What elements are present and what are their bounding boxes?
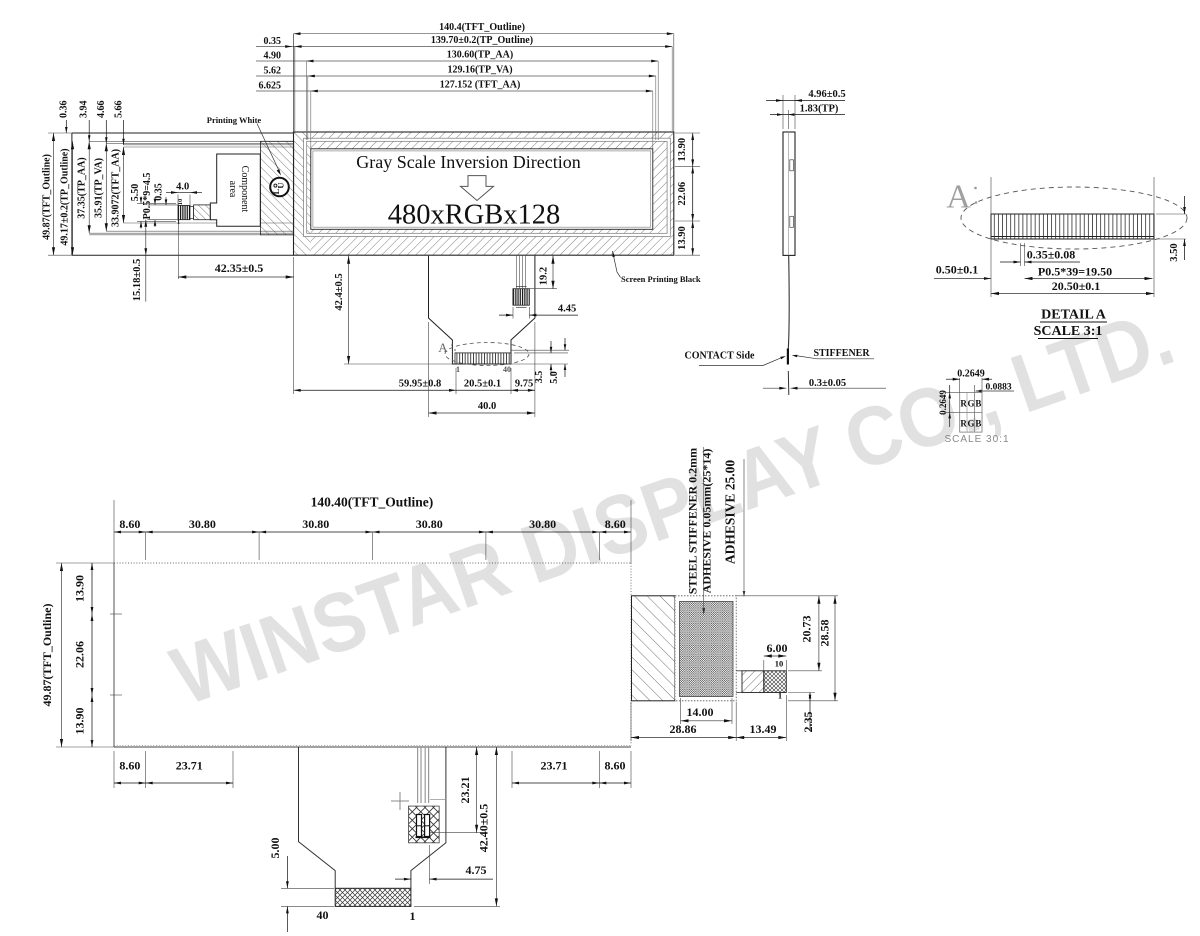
svg-text:40: 40 — [503, 365, 511, 374]
svg-text:13.90: 13.90 — [677, 226, 688, 250]
svg-text:1: 1 — [456, 365, 460, 374]
svg-text:4.90: 4.90 — [264, 51, 282, 62]
svg-text:Screen Printing Black: Screen Printing Black — [621, 274, 701, 284]
svg-text:0.35: 0.35 — [264, 36, 282, 47]
svg-text:22.06: 22.06 — [677, 182, 688, 206]
svg-text:15.18±0.5: 15.18±0.5 — [132, 259, 143, 302]
svg-text:22.06: 22.06 — [73, 641, 87, 668]
svg-text:8.60: 8.60 — [119, 517, 140, 531]
svg-text:20.5±0.1: 20.5±0.1 — [464, 378, 501, 389]
svg-text:0.35±0.08: 0.35±0.08 — [1027, 248, 1076, 262]
svg-text:G: G — [967, 418, 974, 428]
svg-text:140.4(TFT_Outline): 140.4(TFT_Outline) — [439, 22, 525, 33]
svg-text:STEEL STIFFENER 0.2mm: STEEL STIFFENER 0.2mm — [686, 448, 700, 594]
svg-text:40: 40 — [317, 908, 329, 922]
svg-text:23.71: 23.71 — [176, 759, 203, 773]
svg-text:0.2649: 0.2649 — [957, 369, 985, 380]
svg-text:L: L — [271, 188, 281, 194]
svg-text:2.35: 2.35 — [801, 712, 815, 733]
svg-text:CONTACT Side: CONTACT Side — [685, 351, 755, 362]
svg-text:area: area — [227, 181, 238, 198]
svg-text:ADHESIVE 25.00: ADHESIVE 25.00 — [723, 460, 738, 565]
svg-text:42.35±0.5: 42.35±0.5 — [215, 261, 264, 275]
svg-text:4.96±0.5: 4.96±0.5 — [808, 89, 845, 100]
svg-text:0.2649: 0.2649 — [938, 390, 948, 415]
svg-text:3.5: 3.5 — [534, 371, 545, 384]
svg-text:20.73: 20.73 — [800, 616, 814, 643]
svg-text:480xRGBx128: 480xRGBx128 — [388, 200, 561, 231]
svg-text:13.90: 13.90 — [73, 575, 87, 602]
svg-text:P0.5*39=19.50: P0.5*39=19.50 — [1038, 265, 1112, 279]
svg-text:Printing White: Printing White — [207, 115, 262, 125]
svg-text:SCALE 3:1: SCALE 3:1 — [1034, 324, 1103, 339]
svg-text:R: R — [960, 418, 967, 428]
svg-text:A: A — [946, 179, 971, 216]
svg-text:30.80: 30.80 — [302, 517, 329, 531]
svg-text:127.152 (TFT_AA): 127.152 (TFT_AA) — [440, 80, 521, 91]
svg-text:28.58: 28.58 — [818, 620, 832, 647]
svg-text:A: A — [438, 340, 448, 355]
svg-text:23.21: 23.21 — [458, 777, 472, 804]
svg-text:13.49: 13.49 — [750, 722, 777, 736]
svg-text:13.90: 13.90 — [73, 708, 87, 735]
svg-text:4.66: 4.66 — [96, 101, 107, 119]
svg-text:5.0: 5.0 — [549, 371, 560, 384]
svg-text:30.80: 30.80 — [416, 517, 443, 531]
svg-text:28.86: 28.86 — [670, 722, 697, 736]
svg-text:33.9072(TFT_AA): 33.9072(TFT_AA) — [111, 149, 122, 227]
svg-text:R: R — [960, 399, 967, 409]
svg-text:49.87(TFT_Outline): 49.87(TFT_Outline) — [40, 603, 54, 706]
svg-text:8.60: 8.60 — [605, 759, 626, 773]
svg-text:0.36: 0.36 — [59, 101, 70, 119]
svg-text:30.80: 30.80 — [529, 517, 556, 531]
svg-text:P0.5*9=4.5: P0.5*9=4.5 — [142, 173, 153, 220]
svg-text:5.66: 5.66 — [114, 101, 125, 119]
svg-text:30.80: 30.80 — [189, 517, 216, 531]
svg-text:B: B — [975, 418, 981, 428]
svg-text:4.45: 4.45 — [558, 304, 576, 315]
svg-text:3.94: 3.94 — [79, 101, 90, 119]
svg-text:42.4±0.5: 42.4±0.5 — [334, 273, 345, 310]
svg-text:13.90: 13.90 — [677, 138, 688, 162]
svg-text:9.75: 9.75 — [515, 378, 533, 389]
svg-text:42.40±0.5: 42.40±0.5 — [477, 804, 491, 853]
svg-text:140.40(TFT_Outline): 140.40(TFT_Outline) — [311, 495, 434, 510]
svg-text:0.3±0.05: 0.3±0.05 — [809, 378, 846, 389]
svg-text:59.95±0.8: 59.95±0.8 — [399, 378, 442, 389]
svg-text:10: 10 — [775, 659, 784, 669]
svg-text:STIFFENER: STIFFENER — [813, 348, 870, 359]
svg-text:8.60: 8.60 — [119, 759, 140, 773]
svg-text:37.35(TP_AA): 37.35(TP_AA) — [77, 157, 88, 218]
svg-text:DETAIL A: DETAIL A — [1041, 308, 1107, 323]
svg-text:35.91(TP_VA): 35.91(TP_VA) — [94, 158, 105, 218]
svg-text:6.625: 6.625 — [259, 81, 282, 92]
svg-text:129.16(TP_VA): 129.16(TP_VA) — [447, 65, 512, 76]
svg-text:23.71: 23.71 — [541, 759, 568, 773]
svg-text:Component: Component — [239, 166, 250, 213]
svg-text:0.50±0.1: 0.50±0.1 — [936, 263, 979, 277]
svg-text:49.17±0.2(TP_Outline): 49.17±0.2(TP_Outline) — [60, 148, 71, 245]
svg-text:4.75: 4.75 — [466, 863, 487, 877]
svg-text:6.00: 6.00 — [767, 641, 788, 655]
svg-text:5.62: 5.62 — [264, 66, 282, 77]
svg-text:1: 1 — [778, 691, 782, 701]
svg-text:19.2: 19.2 — [539, 267, 550, 285]
svg-text:20.50±0.1: 20.50±0.1 — [1052, 279, 1101, 293]
svg-text:B: B — [975, 399, 981, 409]
svg-text:4.0: 4.0 — [176, 182, 189, 193]
svg-text:ADHESIVE 0.05mm(25*14): ADHESIVE 0.05mm(25*14) — [700, 449, 714, 594]
svg-text:3.50: 3.50 — [1169, 243, 1180, 261]
svg-text:139.70±0.2(TP_Outline): 139.70±0.2(TP_Outline) — [431, 35, 533, 46]
svg-text:1.83(TP): 1.83(TP) — [800, 104, 839, 115]
svg-text:G: G — [967, 399, 974, 409]
svg-text:49.87(TFT_Outline): 49.87(TFT_Outline) — [42, 154, 53, 240]
svg-text:40.0: 40.0 — [478, 401, 496, 412]
svg-text:1: 1 — [410, 909, 416, 923]
svg-text:14.00: 14.00 — [687, 705, 714, 719]
svg-text:5.50: 5.50 — [130, 184, 141, 202]
svg-text:Gray Scale Inversion Direction: Gray Scale Inversion Direction — [356, 152, 580, 172]
svg-text:130.60(TP_AA): 130.60(TP_AA) — [447, 50, 513, 61]
svg-text:5.00: 5.00 — [268, 838, 282, 859]
svg-text:8.60: 8.60 — [605, 517, 626, 531]
svg-text:SCALE 30:1: SCALE 30:1 — [944, 434, 1009, 445]
